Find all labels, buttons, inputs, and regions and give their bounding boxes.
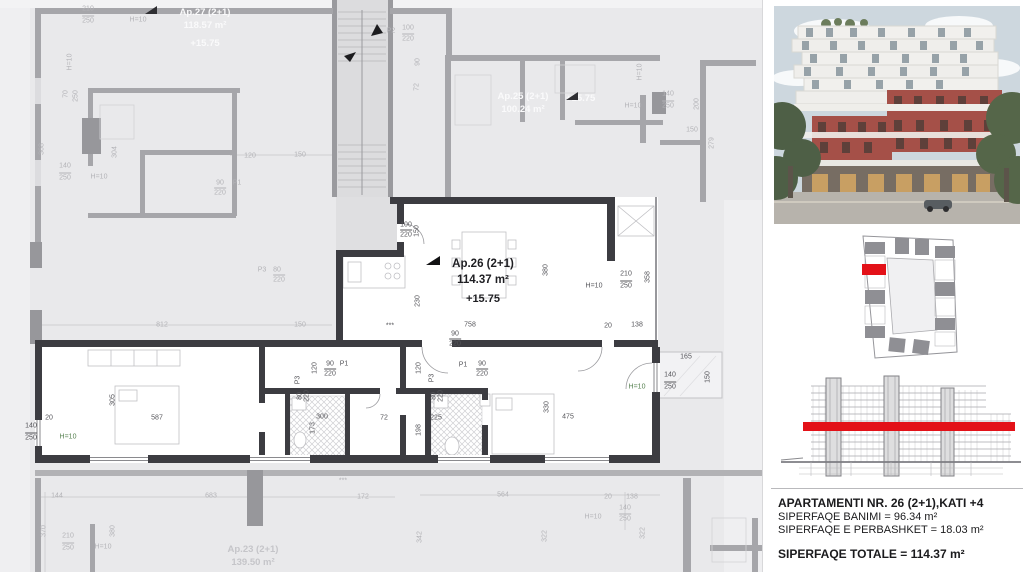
- building-photo: [774, 6, 1020, 224]
- apartment-title: APARTAMENTI NR. 26 (2+1),KATI +4: [778, 496, 983, 510]
- key-plan: [849, 230, 969, 362]
- apartment-brochure: 210250H=10H=1070250368304140250H=10P2100…: [0, 0, 1024, 572]
- panel-divider: [771, 488, 1023, 489]
- floor-plan: 210250H=10H=1070250368304140250H=10P2100…: [0, 0, 762, 572]
- floor-plan-drawing: [0, 0, 762, 572]
- level-band: [803, 422, 1015, 431]
- area-totale: SIPERFAQE TOTALE = 114.37 m²: [778, 547, 965, 561]
- area-perbashket: SIPERFAQE E PERBASHKET = 18.03 m²: [778, 524, 984, 536]
- section-elevation: [781, 370, 1021, 484]
- info-panel: APARTAMENTI NR. 26 (2+1),KATI +4 SIPERFA…: [762, 0, 1024, 572]
- area-banimi: SIPERFAQE BANIMI = 96.34 m²: [778, 511, 937, 523]
- highlight-unit: [862, 264, 886, 275]
